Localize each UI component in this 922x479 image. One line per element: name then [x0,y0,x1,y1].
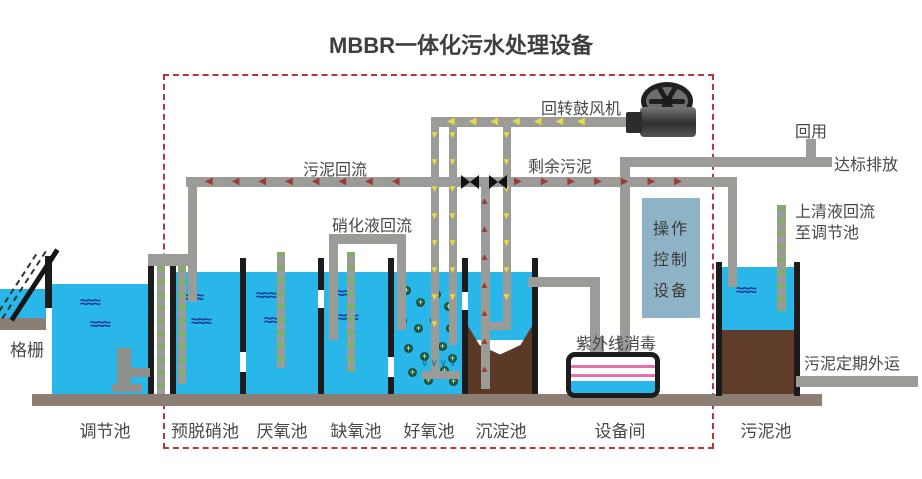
anaerobic-label: 厌氧池 [257,417,308,442]
mbbr-media-dot: + [404,344,413,353]
uv-label: 紫外线消毒 [576,330,656,354]
diffuser-bar [422,371,460,379]
nitrified-return-right-leg [397,234,406,330]
pre-denitrification-label: 预脱硝池 [171,417,239,442]
grid-label: 格栅 [10,336,44,361]
wall-aerobic-sedimentation [462,310,468,394]
sludge-tank-sludge [722,330,794,394]
airlift-elbow [487,322,511,330]
equipment-room-label: 设备间 [595,417,646,442]
anoxic-label: 缺氧池 [331,417,382,442]
mbbr-process-diagram: MBBR一体化污水处理设备 ≈≈≈ ≈≈≈ ≈≈≈ ≈≈≈ ≈≈≈ ≈≈≈ ≈≈… [0,0,922,479]
air-flow-arrows: ▼▼▼▼▼▼▼ [502,130,511,319]
reuse-label: 回用 [795,118,827,142]
blower-label: 回转鼓风机 [541,95,621,119]
regulating-tank-water [52,284,148,394]
wave-icon: ≈≈≈ [80,298,99,308]
wall-anaerobic-anoxic [318,258,324,290]
wall-pre-anaerobic [240,372,246,394]
rotary-blower [624,80,700,138]
aerobic-label: 好氧池 [404,417,455,442]
sludge-return-label: 污泥回流 [303,156,367,180]
wave-icon: ≈≈≈ [736,286,755,296]
bar-screen-icon [2,248,56,322]
sludge-tank-label: 污泥池 [741,417,792,442]
pre-denitrification-drop-pipe [178,266,186,384]
ground-slab [32,394,822,406]
influent-riser-pipe [157,266,165,394]
control-cabinet: 操作 控制 设备 [642,198,700,318]
mbbr-media-dot: + [414,324,423,333]
control-cabinet-label: 操作 [653,215,689,239]
mbbr-media-dot: + [416,298,425,307]
excess-sludge-arrows: ▶▶▶▶▶▶▶ [514,177,701,187]
wave-icon: ≈≈≈ [256,291,275,301]
mbbr-media-dot: + [408,368,417,377]
supernatant-return-pipe [777,205,786,311]
supernatant-label-line2: 至调节池 [795,219,859,243]
pre-denitrification-left-wall [170,256,176,394]
uv-disinfection-device [566,352,660,398]
excess-sludge-down-pipe [728,177,737,287]
wave-icon: ≈≈≈ [90,320,109,330]
discharge-label: 达标排放 [834,151,898,175]
air-flow-arrows: ▼▼▼▼▼▼▼▼ [430,130,439,346]
discharge-pipe [620,157,832,167]
control-cabinet-label: 控制 [653,246,689,270]
pump-outlet-pipe [128,368,150,377]
blower-body [640,107,696,137]
diffuser-bubbles-icon: ∨∨∨∨ [421,359,458,369]
valve-icon [461,175,479,189]
treated-water-riser [620,162,630,336]
nitrified-return-label: 硝化液回流 [332,212,412,236]
excess-sludge-label: 剩余污泥 [528,153,592,177]
regulating-tank-label: 调节池 [80,417,131,442]
sludge-removal-pipe [796,376,918,387]
wall-anaerobic-anoxic [318,308,324,394]
pump-body [117,348,131,386]
nitrified-return-left-leg [329,234,338,340]
sludge-return-down-pipe [188,177,197,302]
sedimentation-label: 沉淀池 [476,417,527,442]
sludge-lift-arrows: ▲▲▲▲▲▲▲ [480,196,489,392]
control-cabinet-label: 设备 [653,277,689,301]
wall-aerobic-sedimentation [462,258,468,292]
blower-inlet-cap [626,112,642,133]
wave-icon: ≈≈≈ [191,317,210,327]
air-flow-arrows: ▼▼▼▼▼▼▼ [448,130,457,319]
anaerobic-drop-pipe [277,252,285,368]
valve-icon [489,175,507,189]
wall-pre-anaerobic [240,258,246,352]
diagram-title: MBBR一体化污水处理设备 [329,28,593,60]
anoxic-drop-pipe [347,252,355,372]
sludge-tank-left-wall [716,262,722,396]
reuse-branch-pipe [806,139,816,159]
sludge-removal-label: 污泥定期外运 [804,350,900,374]
